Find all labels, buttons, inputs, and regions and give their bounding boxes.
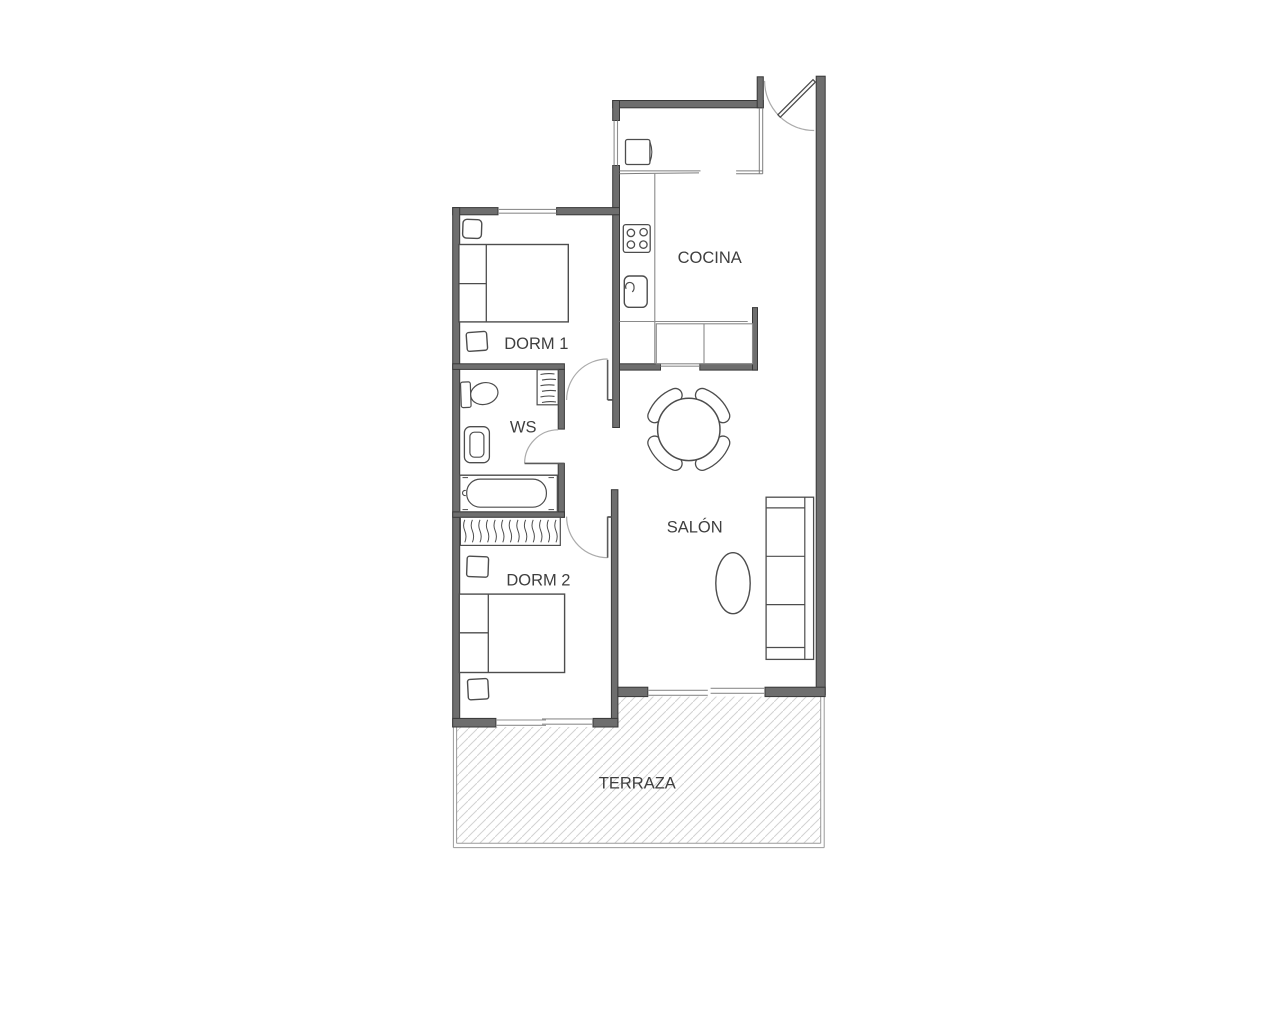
svg-text:WS: WS xyxy=(510,418,537,436)
svg-text:SALÓN: SALÓN xyxy=(667,518,723,537)
svg-text:TERRAZA: TERRAZA xyxy=(599,774,676,792)
svg-text:DORM 1: DORM 1 xyxy=(504,335,568,353)
svg-text:DORM 2: DORM 2 xyxy=(506,571,570,589)
svg-text:COCINA: COCINA xyxy=(678,249,742,267)
